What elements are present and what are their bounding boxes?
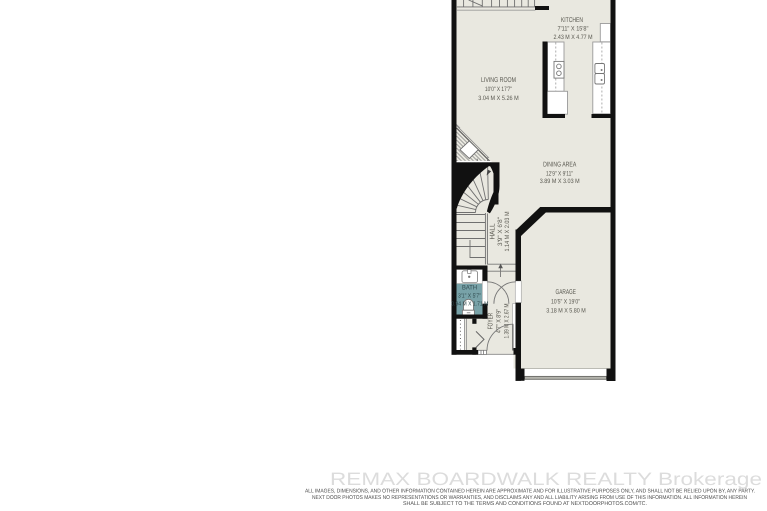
svg-text:1.14 M X 2.03 M: 1.14 M X 2.03 M [504, 212, 511, 252]
svg-text:KITCHEN: KITCHEN [561, 17, 583, 24]
svg-text:7'11" X 15'8": 7'11" X 15'8" [558, 26, 589, 33]
svg-text:FOYER: FOYER [488, 313, 495, 330]
svg-text:3.18 M X 5.80 M: 3.18 M X 5.80 M [546, 308, 586, 315]
svg-text:ALL IMAGES, DIMENSIONS, AND OT: ALL IMAGES, DIMENSIONS, AND OTHER INFORM… [305, 489, 755, 495]
svg-text:1.39 M X 2.67 M: 1.39 M X 2.67 M [503, 304, 510, 339]
svg-text:3.04 M X 5.26 M: 3.04 M X 5.26 M [478, 95, 518, 102]
svg-text:BATH: BATH [462, 285, 477, 292]
svg-text:3.89 M X 3.03 M: 3.89 M X 3.03 M [540, 178, 580, 185]
svg-text:NEXT DOOR PHOTOS MAKES NO REPR: NEXT DOOR PHOTOS MAKES NO REPRESENTATION… [312, 495, 747, 501]
svg-text:10'5" X 19'0": 10'5" X 19'0" [551, 299, 580, 306]
svg-text:0.94 M X 1.71 M: 0.94 M X 1.71 M [451, 301, 488, 308]
svg-text:3'9" X 6'8": 3'9" X 6'8" [497, 217, 504, 246]
svg-text:HALL: HALL [490, 223, 497, 239]
svg-text:10'0" X 17'7": 10'0" X 17'7" [485, 86, 512, 93]
svg-text:LIVING ROOM: LIVING ROOM [481, 77, 516, 84]
svg-text:DINING AREA: DINING AREA [543, 162, 576, 169]
svg-text:4'7" X 8'9": 4'7" X 8'9" [495, 309, 502, 333]
svg-text:SHALL BE SUBJECT TO THE TERMS: SHALL BE SUBJECT TO THE TERMS AND CONDIT… [403, 501, 647, 507]
svg-text:GARAGE: GARAGE [556, 289, 577, 296]
svg-text:2.43 M X 4.77 M: 2.43 M X 4.77 M [553, 34, 592, 41]
svg-text:3'1" X 5'7": 3'1" X 5'7" [458, 293, 481, 300]
svg-text:REMAX BOARDWALK REALTY Brokera: REMAX BOARDWALK REALTY Brokerage [330, 469, 762, 489]
svg-text:12'9" X 9'11": 12'9" X 9'11" [546, 171, 573, 178]
